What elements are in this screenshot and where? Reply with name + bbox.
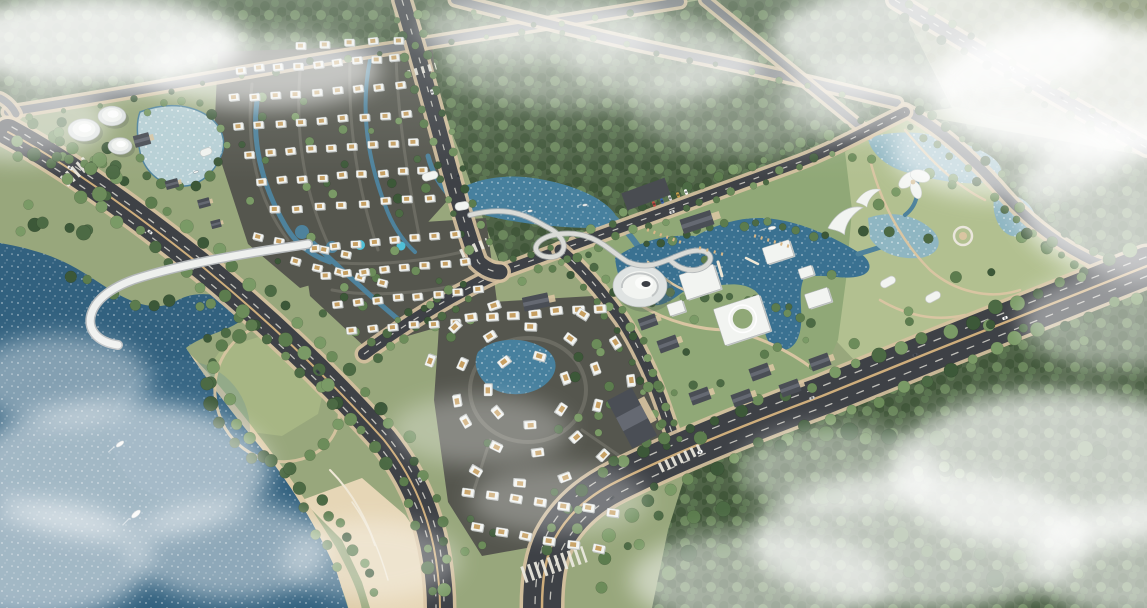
cloud bbox=[390, 395, 570, 465]
scene-layers bbox=[0, 0, 1147, 608]
masterplan-aerial-render bbox=[0, 0, 1147, 608]
cloud bbox=[780, 64, 960, 136]
cloud bbox=[140, 32, 380, 108]
cloud bbox=[470, 465, 650, 535]
masterplan-render-stage bbox=[0, 0, 1147, 608]
cloud bbox=[740, 425, 940, 515]
cloud bbox=[280, 520, 460, 600]
